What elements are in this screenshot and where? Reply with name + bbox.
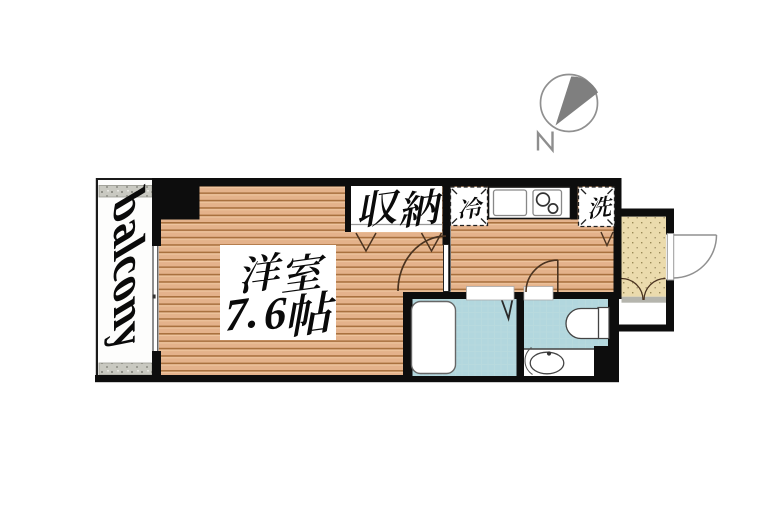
svg-text:6: 6: [264, 287, 287, 340]
svg-text:7.: 7.: [225, 286, 259, 340]
svg-text:balcony: balcony: [104, 178, 155, 362]
